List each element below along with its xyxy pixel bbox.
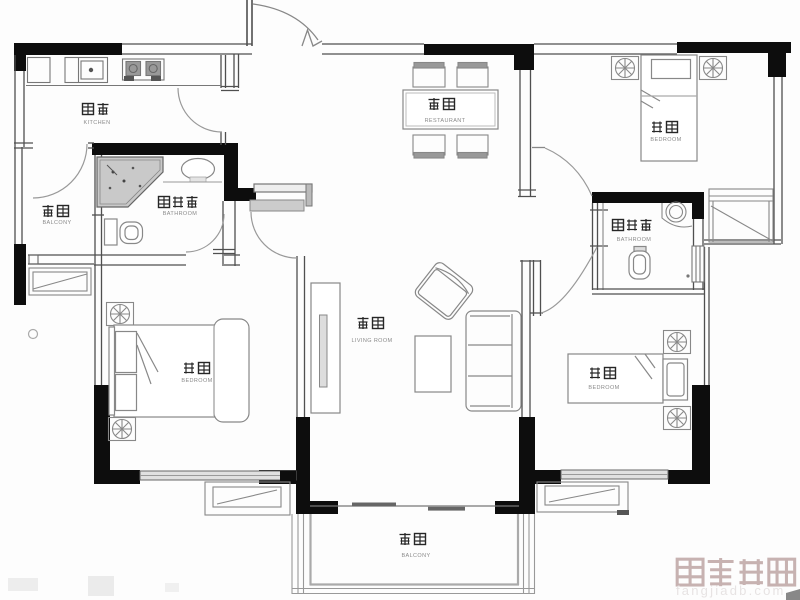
svg-text:BEDROOM: BEDROOM [650,137,681,143]
svg-text:RESTAURANT: RESTAURANT [425,118,466,124]
svg-text:fangjiadb.com: fangjiadb.com [676,583,786,598]
svg-text:BEDROOM: BEDROOM [181,378,212,384]
svg-text:BALCONY: BALCONY [42,220,71,226]
svg-text:BATHROOM: BATHROOM [617,237,652,243]
svg-text:KITCHEN: KITCHEN [84,120,111,126]
svg-text:BATHROOM: BATHROOM [163,211,198,217]
svg-text:LIVING ROOM: LIVING ROOM [351,338,392,344]
svg-text:BEDROOM: BEDROOM [588,385,619,391]
svg-text:BALCONY: BALCONY [401,553,430,559]
